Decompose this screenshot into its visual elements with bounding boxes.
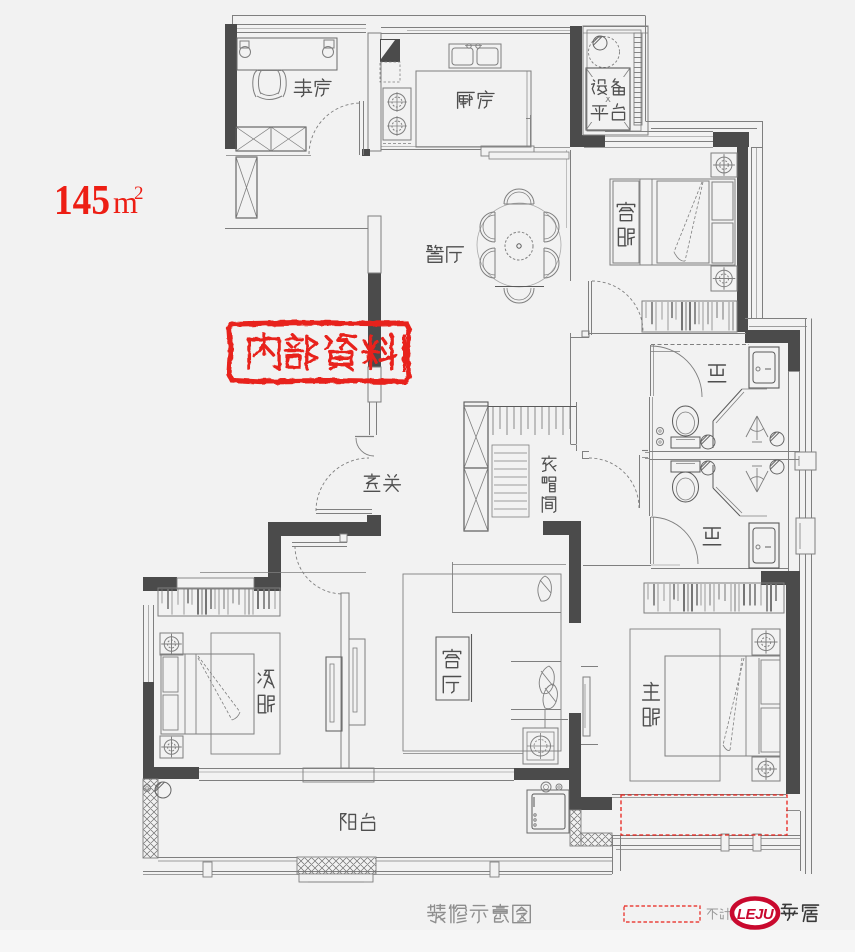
- svg-text:2: 2: [134, 183, 144, 204]
- svg-text:LEJU: LEJU: [737, 906, 775, 923]
- svg-text:145: 145: [54, 178, 110, 224]
